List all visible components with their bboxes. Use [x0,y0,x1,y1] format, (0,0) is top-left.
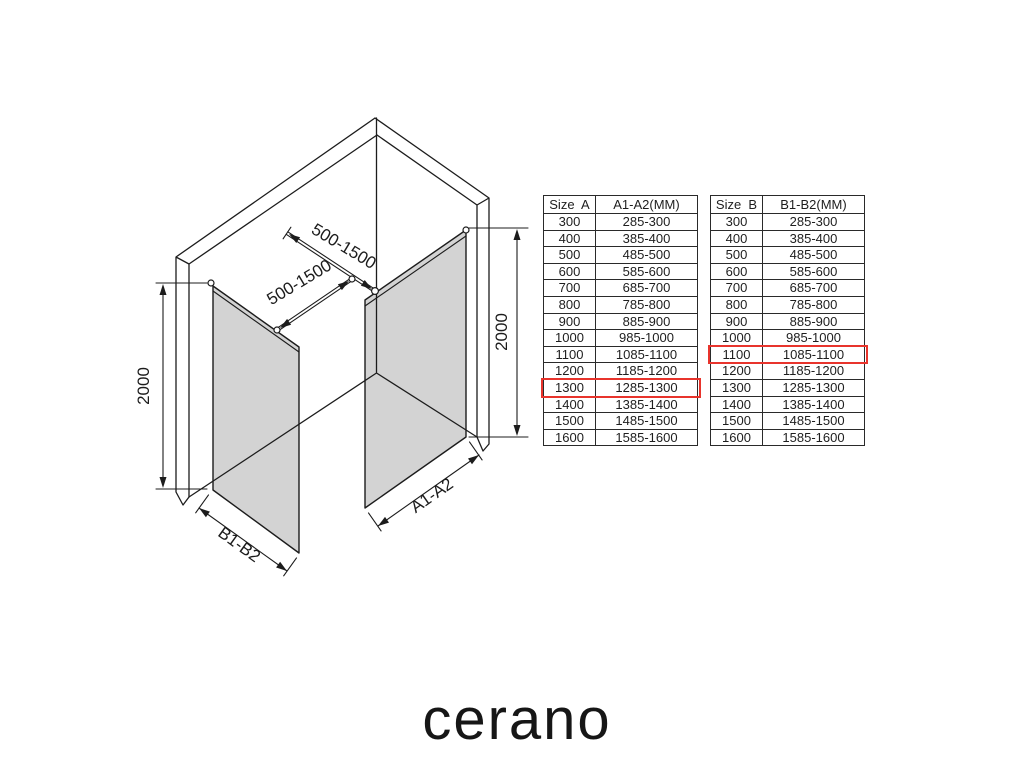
table-cell: 1085-1100 [763,346,865,363]
panel-right-width-label: A1-A2 [407,474,457,517]
support-bar-bottom-label: 500-1500 [263,256,334,309]
table-row: 14001385-1400 [544,396,698,413]
table-cell: 1485-1500 [596,413,698,430]
table-cell: 1100 [544,346,596,363]
table-row: 600585-600 [711,263,865,280]
table-row: 900885-900 [711,313,865,330]
table-row: 900885-900 [544,313,698,330]
shower-enclosure-diagram: 500-1500 500-1500 2000 [0,0,1024,768]
bar-junction-dot [349,276,355,282]
table-row: 500485-500 [711,247,865,264]
table-cell: 1100 [711,346,763,363]
table-cell: 300 [711,214,763,231]
size-b-header-row: Size BB1-B2(MM) [711,196,865,214]
height-right-label: 2000 [492,313,511,351]
table-cell: 700 [544,280,596,297]
size-a-header-row: Size AA1-A2(MM) [544,196,698,214]
column-header: Size B [711,196,763,214]
table-cell: 1585-1600 [596,429,698,446]
table-row: 700685-700 [711,280,865,297]
table-cell: 885-900 [596,313,698,330]
table-row: 300285-300 [544,214,698,231]
table-cell: 485-500 [596,247,698,264]
table-cell: 1585-1600 [763,429,865,446]
table-cell: 285-300 [763,214,865,231]
table-row: 600585-600 [544,263,698,280]
table-cell: 1500 [711,413,763,430]
table-cell: 1285-1300 [596,379,698,396]
table-cell: 900 [544,313,596,330]
size-b-table: Size BB1-B2(MM) 300285-300400385-4005004… [710,195,865,446]
table-cell: 1000 [711,330,763,347]
table-cell: 1200 [544,363,596,380]
glass-panel-right [365,230,466,508]
table-cell: 385-400 [596,230,698,247]
support-bar-bottom: 500-1500 [263,256,352,332]
wall-bracket-dot [208,280,214,286]
table-cell: 485-500 [763,247,865,264]
table-row: 15001485-1500 [544,413,698,430]
table-cell: 600 [711,263,763,280]
table-cell: 585-600 [763,263,865,280]
table-cell: 385-400 [763,230,865,247]
table-cell: 300 [544,214,596,231]
table-cell: 985-1000 [763,330,865,347]
table-cell: 1385-1400 [763,396,865,413]
table-cell: 400 [544,230,596,247]
table-row: 700685-700 [544,280,698,297]
table-cell: 1600 [711,429,763,446]
table-row: 12001185-1200 [544,363,698,380]
table-cell: 585-600 [596,263,698,280]
table-cell: 1200 [711,363,763,380]
table-row: 400385-400 [711,230,865,247]
table-cell: 1185-1200 [596,363,698,380]
table-row: 13001285-1300 [544,379,698,396]
table-cell: 1400 [711,396,763,413]
table-cell: 285-300 [596,214,698,231]
table-row: 11001085-1100 [711,346,865,363]
table-cell: 885-900 [763,313,865,330]
table-row: 500485-500 [544,247,698,264]
brand-logo: cerano [5,686,1024,753]
table-cell: 900 [711,313,763,330]
table-row: 16001585-1600 [544,429,698,446]
table-row: 800785-800 [544,296,698,313]
table-cell: 1285-1300 [763,379,865,396]
table-cell: 1185-1200 [763,363,865,380]
table-row: 14001385-1400 [711,396,865,413]
table-row: 15001485-1500 [711,413,865,430]
table-row: 13001285-1300 [711,379,865,396]
dimension-height-left: 2000 [134,283,207,489]
table-row: 1000985-1000 [544,330,698,347]
table-cell: 985-1000 [596,330,698,347]
height-left-label: 2000 [134,367,153,405]
dimension-height-right: 2000 [469,228,528,437]
table-row: 800785-800 [711,296,865,313]
column-header: B1-B2(MM) [763,196,865,214]
table-cell: 785-800 [763,296,865,313]
table-cell: 800 [711,296,763,313]
wall-bracket-dot [463,227,469,233]
table-row: 400385-400 [544,230,698,247]
table-cell: 500 [711,247,763,264]
product-diagram-page: 500-1500 500-1500 2000 [0,0,1024,768]
table-cell: 700 [711,280,763,297]
glass-bracket-dot [274,327,280,333]
table-cell: 1600 [544,429,596,446]
table-cell: 1400 [544,396,596,413]
table-cell: 1385-1400 [596,396,698,413]
table-row: 300285-300 [711,214,865,231]
table-cell: 685-700 [763,280,865,297]
table-row: 1000985-1000 [711,330,865,347]
table-cell: 500 [544,247,596,264]
table-cell: 600 [544,263,596,280]
table-cell: 1085-1100 [596,346,698,363]
table-cell: 1300 [711,379,763,396]
corner-bracket-dot [372,288,379,295]
table-row: 11001085-1100 [544,346,698,363]
table-row: 12001185-1200 [711,363,865,380]
column-header: A1-A2(MM) [596,196,698,214]
table-cell: 1500 [544,413,596,430]
table-cell: 800 [544,296,596,313]
table-cell: 400 [711,230,763,247]
table-row: 16001585-1600 [711,429,865,446]
size-a-table: Size AA1-A2(MM) 300285-300400385-4005004… [543,195,698,446]
column-header: Size A [544,196,596,214]
panel-left-width-label: B1-B2 [215,523,264,566]
table-cell: 685-700 [596,280,698,297]
table-cell: 1485-1500 [763,413,865,430]
table-cell: 1000 [544,330,596,347]
table-cell: 785-800 [596,296,698,313]
table-cell: 1300 [544,379,596,396]
